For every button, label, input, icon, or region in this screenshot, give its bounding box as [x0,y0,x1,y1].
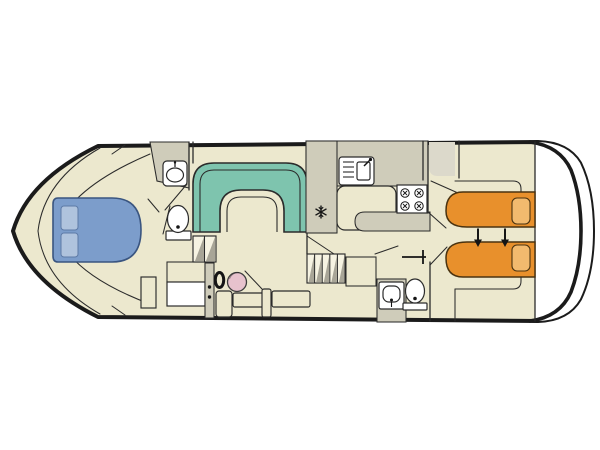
bench-backrest [262,289,271,317]
pillow-icon [61,206,78,230]
pillow-icon [512,245,530,271]
cabinet [141,277,156,308]
bench-seat [216,291,232,317]
companionway-stairs-icon [307,254,345,283]
floor-plan-canvas [0,0,600,450]
wardrobe [429,142,455,176]
bow-cabin [53,198,141,262]
helm-console [205,263,214,318]
washbasin-icon [163,161,187,186]
bench-seat [272,291,310,307]
fridge-column [306,141,337,233]
pillow-icon [61,233,78,257]
pillow-icon [512,198,530,224]
washbasin-icon [379,282,404,309]
boat-floor-plan [0,0,600,450]
shower-tray [167,282,205,306]
sink-icon [339,157,374,185]
forward-steps-icon [193,236,216,262]
helm-seat-icon [228,273,247,292]
peninsula-counter [355,212,430,231]
stove-icon [397,185,427,213]
